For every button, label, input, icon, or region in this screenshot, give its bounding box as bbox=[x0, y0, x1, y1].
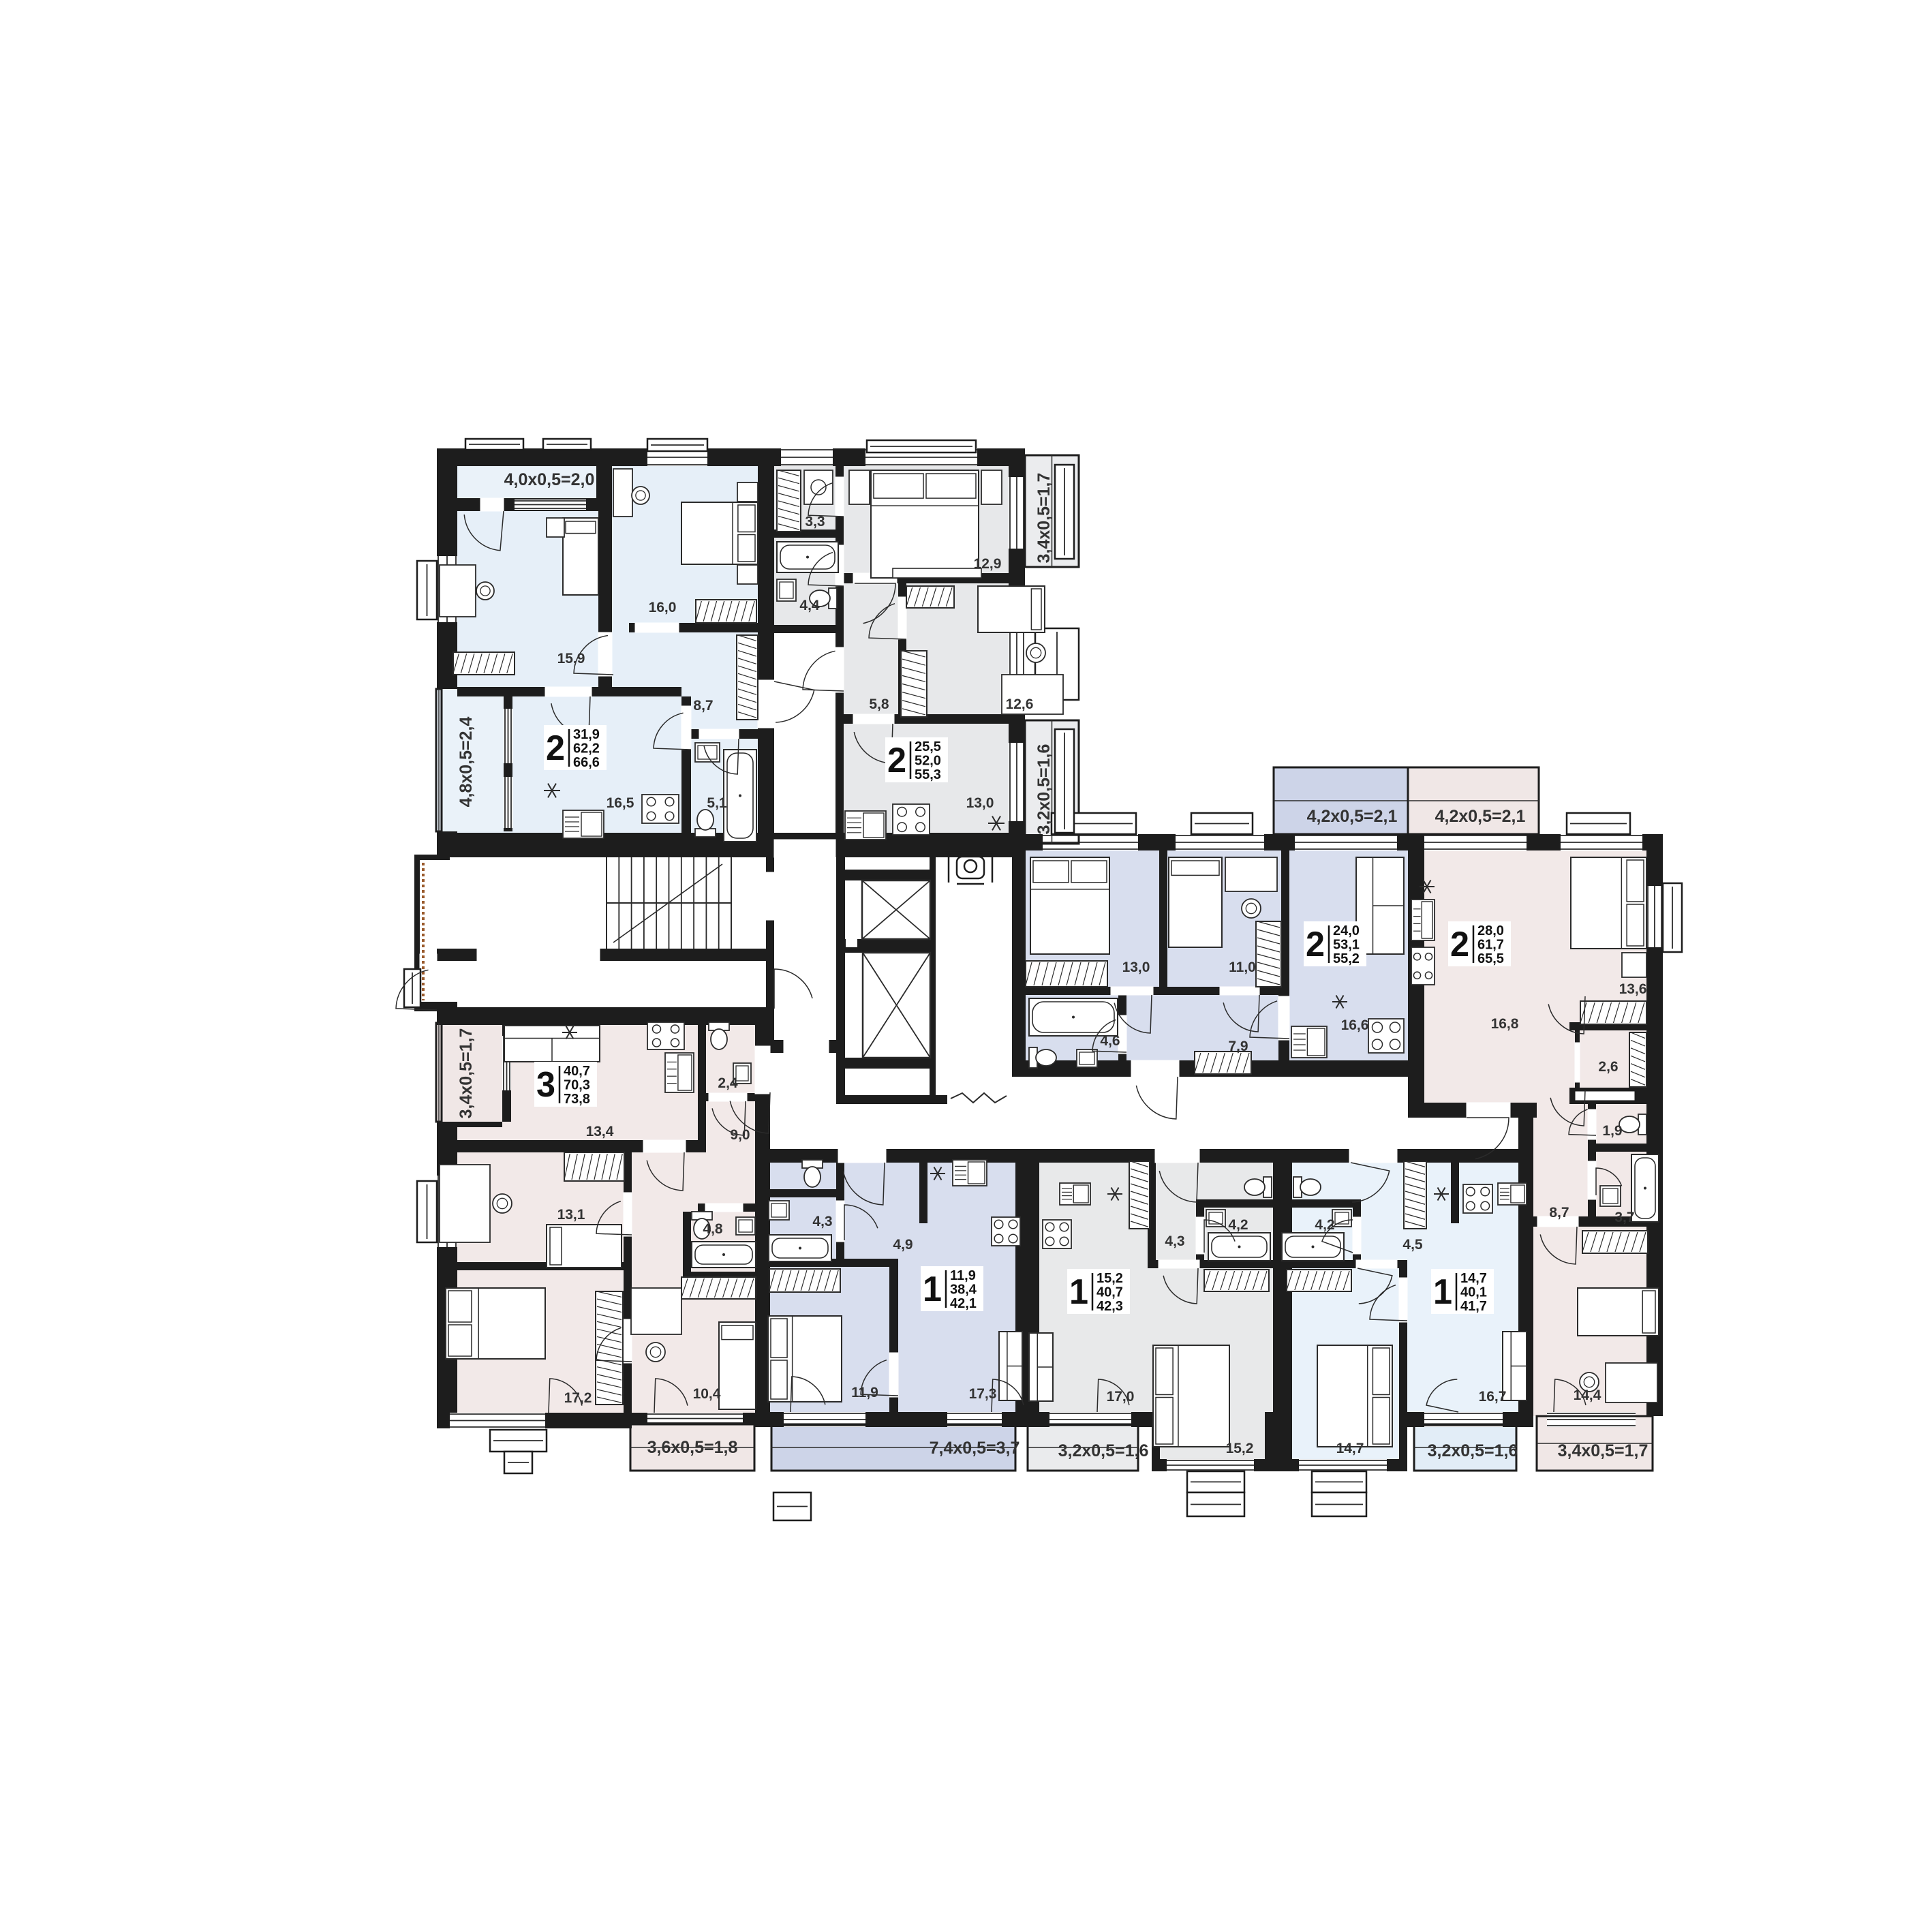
svg-text:24,0: 24,0 bbox=[1333, 923, 1360, 938]
svg-text:52,0: 52,0 bbox=[915, 754, 941, 769]
svg-text:4,2х0,5=2,1: 4,2х0,5=2,1 bbox=[1435, 807, 1526, 826]
svg-text:2: 2 bbox=[1306, 925, 1325, 964]
svg-text:3,4х0,5=1,7: 3,4х0,5=1,7 bbox=[1558, 1441, 1649, 1460]
svg-text:3,2х0,5=1,6: 3,2х0,5=1,6 bbox=[1428, 1441, 1518, 1460]
svg-text:3: 3 bbox=[536, 1065, 555, 1105]
svg-text:4,2: 4,2 bbox=[1315, 1217, 1334, 1233]
svg-text:2: 2 bbox=[546, 729, 565, 768]
svg-text:3,4х0,5=1,7: 3,4х0,5=1,7 bbox=[1034, 473, 1054, 564]
svg-text:4,5: 4,5 bbox=[1402, 1237, 1423, 1253]
svg-text:4,3: 4,3 bbox=[1165, 1233, 1184, 1249]
svg-text:8,7: 8,7 bbox=[693, 698, 713, 714]
svg-text:17,3: 17,3 bbox=[969, 1386, 997, 1402]
svg-text:16,7: 16,7 bbox=[1479, 1389, 1507, 1405]
svg-text:12,9: 12,9 bbox=[974, 556, 1002, 572]
svg-text:2,6: 2,6 bbox=[1598, 1059, 1618, 1075]
svg-text:3,2х0,5=1,6: 3,2х0,5=1,6 bbox=[1058, 1441, 1149, 1460]
svg-text:4,2: 4,2 bbox=[1228, 1217, 1248, 1233]
svg-text:2: 2 bbox=[887, 741, 906, 780]
svg-text:4,8: 4,8 bbox=[703, 1221, 723, 1237]
svg-text:11,9: 11,9 bbox=[851, 1385, 878, 1400]
svg-text:65,5: 65,5 bbox=[1477, 951, 1504, 966]
svg-text:62,2: 62,2 bbox=[573, 741, 600, 756]
svg-text:4,2х0,5=2,1: 4,2х0,5=2,1 bbox=[1307, 807, 1398, 826]
svg-text:15,2: 15,2 bbox=[1226, 1441, 1254, 1456]
svg-text:16,5: 16,5 bbox=[607, 795, 634, 811]
svg-text:40,1: 40,1 bbox=[1460, 1285, 1487, 1300]
svg-text:1: 1 bbox=[923, 1270, 942, 1309]
svg-text:3,4х0,5=1,7: 3,4х0,5=1,7 bbox=[457, 1028, 476, 1119]
svg-text:1: 1 bbox=[1069, 1272, 1088, 1312]
svg-text:40,7: 40,7 bbox=[564, 1064, 590, 1079]
svg-text:17,0: 17,0 bbox=[1107, 1389, 1135, 1405]
svg-text:11,0: 11,0 bbox=[1229, 960, 1256, 975]
svg-text:14,4: 14,4 bbox=[1574, 1387, 1601, 1403]
svg-text:9,0: 9,0 bbox=[730, 1127, 750, 1143]
svg-text:41,7: 41,7 bbox=[1460, 1299, 1487, 1314]
svg-text:15,9: 15,9 bbox=[557, 651, 585, 666]
svg-text:2: 2 bbox=[1450, 925, 1469, 964]
svg-text:42,1: 42,1 bbox=[950, 1296, 977, 1311]
svg-text:4,6: 4,6 bbox=[1100, 1033, 1120, 1049]
svg-text:38,4: 38,4 bbox=[950, 1283, 977, 1298]
svg-text:55,2: 55,2 bbox=[1333, 951, 1360, 966]
svg-text:61,7: 61,7 bbox=[1477, 938, 1504, 953]
svg-text:16,6: 16,6 bbox=[1341, 1017, 1369, 1033]
svg-text:13,0: 13,0 bbox=[966, 795, 994, 811]
svg-text:4,3: 4,3 bbox=[812, 1214, 832, 1229]
svg-text:5,8: 5,8 bbox=[869, 696, 889, 712]
svg-text:10,4: 10,4 bbox=[693, 1386, 721, 1402]
svg-text:14,7: 14,7 bbox=[1336, 1441, 1364, 1456]
svg-text:11,9: 11,9 bbox=[950, 1268, 976, 1283]
svg-text:3,6х0,5=1,8: 3,6х0,5=1,8 bbox=[647, 1438, 738, 1457]
svg-text:5,1: 5,1 bbox=[707, 795, 727, 811]
svg-text:14,7: 14,7 bbox=[1460, 1271, 1487, 1286]
svg-text:13,0: 13,0 bbox=[1122, 960, 1150, 975]
svg-text:17,2: 17,2 bbox=[564, 1390, 592, 1406]
svg-text:13,4: 13,4 bbox=[586, 1124, 614, 1139]
svg-text:73,8: 73,8 bbox=[564, 1092, 590, 1107]
svg-text:4,4: 4,4 bbox=[799, 598, 820, 613]
svg-text:3,7: 3,7 bbox=[1614, 1210, 1634, 1225]
svg-text:4,9: 4,9 bbox=[893, 1237, 913, 1253]
svg-text:2,4: 2,4 bbox=[718, 1075, 738, 1091]
svg-text:4,0х0,5=2,0: 4,0х0,5=2,0 bbox=[504, 470, 595, 489]
svg-text:42,3: 42,3 bbox=[1097, 1299, 1123, 1314]
svg-text:55,3: 55,3 bbox=[915, 767, 941, 782]
svg-text:16,8: 16,8 bbox=[1491, 1016, 1519, 1032]
svg-text:15,2: 15,2 bbox=[1097, 1271, 1123, 1286]
svg-text:3,3: 3,3 bbox=[805, 514, 825, 530]
svg-text:66,6: 66,6 bbox=[573, 755, 600, 770]
svg-text:28,0: 28,0 bbox=[1477, 923, 1504, 938]
svg-text:1: 1 bbox=[1433, 1272, 1452, 1312]
svg-text:40,7: 40,7 bbox=[1097, 1285, 1123, 1300]
svg-text:1,9: 1,9 bbox=[1602, 1123, 1622, 1139]
svg-text:4,8х0,5=2,4: 4,8х0,5=2,4 bbox=[457, 717, 476, 808]
svg-text:3,2х0,5=1,6: 3,2х0,5=1,6 bbox=[1034, 744, 1054, 835]
svg-text:25,5: 25,5 bbox=[915, 739, 941, 754]
svg-text:13,6: 13,6 bbox=[1619, 981, 1647, 997]
svg-text:7,4х0,5=3,7: 7,4х0,5=3,7 bbox=[930, 1439, 1020, 1458]
svg-text:16,0: 16,0 bbox=[649, 600, 677, 615]
svg-text:31,9: 31,9 bbox=[573, 727, 600, 742]
svg-text:13,1: 13,1 bbox=[557, 1207, 585, 1223]
svg-text:12,6: 12,6 bbox=[1006, 696, 1034, 712]
svg-text:8,7: 8,7 bbox=[1549, 1205, 1569, 1221]
svg-text:70,3: 70,3 bbox=[564, 1078, 590, 1093]
svg-text:7,9: 7,9 bbox=[1228, 1039, 1248, 1054]
svg-text:53,1: 53,1 bbox=[1333, 938, 1360, 953]
